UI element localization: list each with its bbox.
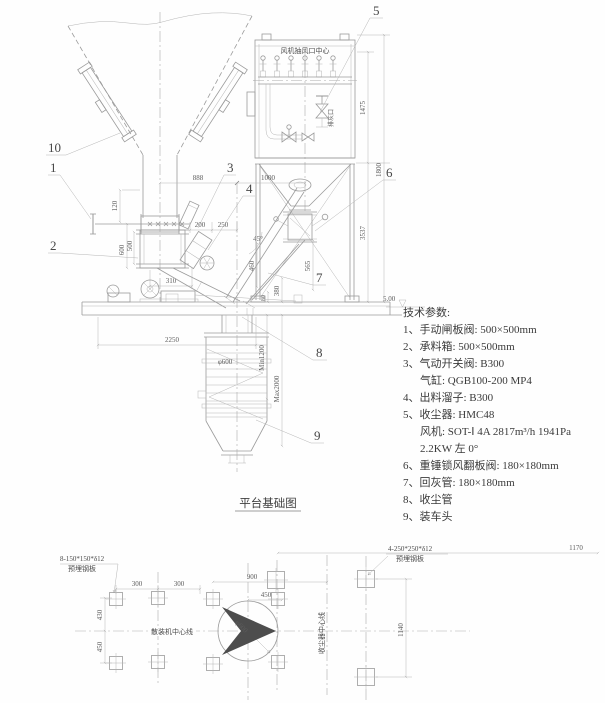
right-dims: 1475 3537 1800 xyxy=(356,35,390,302)
label-10: 10 xyxy=(46,133,120,155)
dim-text-900: 900 xyxy=(247,573,258,581)
tech-param-line: 4、出料溜子: B300 xyxy=(403,390,603,407)
dim-text-1170: 1170 xyxy=(569,544,583,552)
dim-max2000: Max2000 xyxy=(273,315,282,446)
dim-text-460: 460 xyxy=(248,260,256,271)
dim-text-600: 600 xyxy=(118,244,126,255)
dim-text-max2000: Max2000 xyxy=(273,375,281,402)
embedded-plate-note-right-line2: 预埋钢板 xyxy=(396,554,424,563)
label-8: 8 xyxy=(242,317,327,360)
label-1: 1 xyxy=(48,160,91,219)
dim-text-1475: 1475 xyxy=(359,101,367,116)
dim-text-min1200: Min1200 xyxy=(258,345,266,371)
dim-310: 310 xyxy=(150,268,192,289)
part-number-3: 3 xyxy=(227,160,234,175)
plan-centerlines xyxy=(75,555,470,700)
tech-param-line: 风机: SOT-Ⅰ 4A 2817m³/h 1941Pa xyxy=(403,424,603,441)
tech-param-line: 1、手动闸板阀: 500×500mm xyxy=(403,322,603,339)
tech-param-line: 2.2KW 左 0° xyxy=(403,441,603,458)
hopper xyxy=(68,12,252,302)
platform xyxy=(82,302,402,315)
ash-outlet-label: 排灰口 xyxy=(327,109,335,127)
embedded-plate-note-left-line2: 预埋钢板 xyxy=(68,564,96,573)
tech-param-line: 5、收尘器: HMC48 xyxy=(403,407,603,424)
pneumatic-valve xyxy=(179,201,214,270)
dim-text-1000: 1000 xyxy=(261,174,276,182)
dim-text-250: 250 xyxy=(218,221,229,229)
part-number-1: 1 xyxy=(50,160,57,175)
dim-80: 80 xyxy=(261,292,268,302)
dust-collector: 风机抽风口中心 排灰 xyxy=(247,34,357,212)
dim-text-1800: 1800 xyxy=(375,163,383,178)
dim-120: 120 xyxy=(111,190,140,222)
dim-text-300a: 300 xyxy=(132,580,143,588)
dim-text-200: 200 xyxy=(195,221,206,229)
drawing-title: 平台基础图 xyxy=(239,496,297,510)
tech-param-line: 7、回灰管: 180×180mm xyxy=(403,475,603,492)
dim-text-450: 450 xyxy=(261,591,272,599)
part-number-8: 8 xyxy=(316,345,323,360)
embedded-plate-note-right-line1: 4-250*250*δ12 xyxy=(388,545,433,553)
plan-dims: 300 300 430 450 900 450 1170 1140 xyxy=(96,544,598,677)
dim-200-250: 200 250 xyxy=(190,221,237,233)
part-number-5: 5 xyxy=(373,3,380,18)
dim-text-430: 430 xyxy=(96,609,104,620)
vibrator-right xyxy=(189,62,250,143)
vibrator-left xyxy=(75,62,136,143)
collector-centerline-label: 收尘器中心线 xyxy=(317,612,326,654)
dim-text-2250: 2250 xyxy=(165,336,180,344)
dim-565: 565 xyxy=(304,240,313,290)
tech-param-line: 气缸: QGB100-200 MP4 xyxy=(403,373,603,390)
dim-chain-888-1000: 888 1000 xyxy=(160,174,305,185)
dim-text-80: 80 xyxy=(261,295,267,301)
tech-params-title: 技术参数: xyxy=(403,305,603,322)
dim-text-380: 380 xyxy=(273,285,281,296)
part-number-10: 10 xyxy=(48,140,61,155)
embedded-plate-note-left-line1: 8-150*150*δ12 xyxy=(60,555,105,563)
part-number-9: 9 xyxy=(314,428,321,443)
tech-param-line: 9、装车头 xyxy=(403,509,603,526)
part-number-7: 7 xyxy=(316,270,323,285)
drawing-sheet: 10 1 120 2 xyxy=(0,0,605,703)
pulse-valves xyxy=(260,56,337,77)
dim-text-500: 500 xyxy=(126,240,134,251)
drain-valves xyxy=(282,125,314,142)
loader-centerline-label: 散装机中心线 xyxy=(151,627,193,636)
label-9: 9 xyxy=(256,420,324,443)
spout-diameter-label: φ600 xyxy=(218,358,233,366)
dim-text-3537: 3537 xyxy=(359,226,367,241)
dim-text-1140: 1140 xyxy=(397,623,405,637)
tech-param-line: 3、气动开关阀: B300 xyxy=(403,356,603,373)
caption: 平台基础图 xyxy=(235,496,301,511)
label-4: 4 xyxy=(208,181,255,250)
material-box xyxy=(136,230,189,268)
note-right: 4-250*250*δ12 预埋钢板 xyxy=(368,545,448,575)
label-5: 5 xyxy=(320,3,383,112)
part-number-2: 2 xyxy=(50,238,57,253)
part-number-6: 6 xyxy=(386,165,393,180)
dim-text-565: 565 xyxy=(304,260,312,271)
dim-text-120: 120 xyxy=(111,200,119,211)
dim-text-300b: 300 xyxy=(174,580,185,588)
dim-text-888: 888 xyxy=(193,174,204,182)
dim-text-450-left: 450 xyxy=(96,641,104,652)
label-3: 3 xyxy=(198,160,236,228)
tech-param-line: 2、承料箱: 500×500mm xyxy=(403,339,603,356)
dim-380: 380 xyxy=(273,278,282,302)
tech-param-line: 6、重锤锁风翻板阀: 180×180mm xyxy=(403,458,603,475)
dim-text-45deg: 45° xyxy=(253,235,263,243)
note-left: 8-150*150*δ12 预埋钢板 xyxy=(60,555,118,593)
tech-params: 技术参数: 1、手动闸板阀: 500×500mm 2、承料箱: 500×500m… xyxy=(403,305,603,526)
tech-param-line: 8、收尘管 xyxy=(403,492,603,509)
